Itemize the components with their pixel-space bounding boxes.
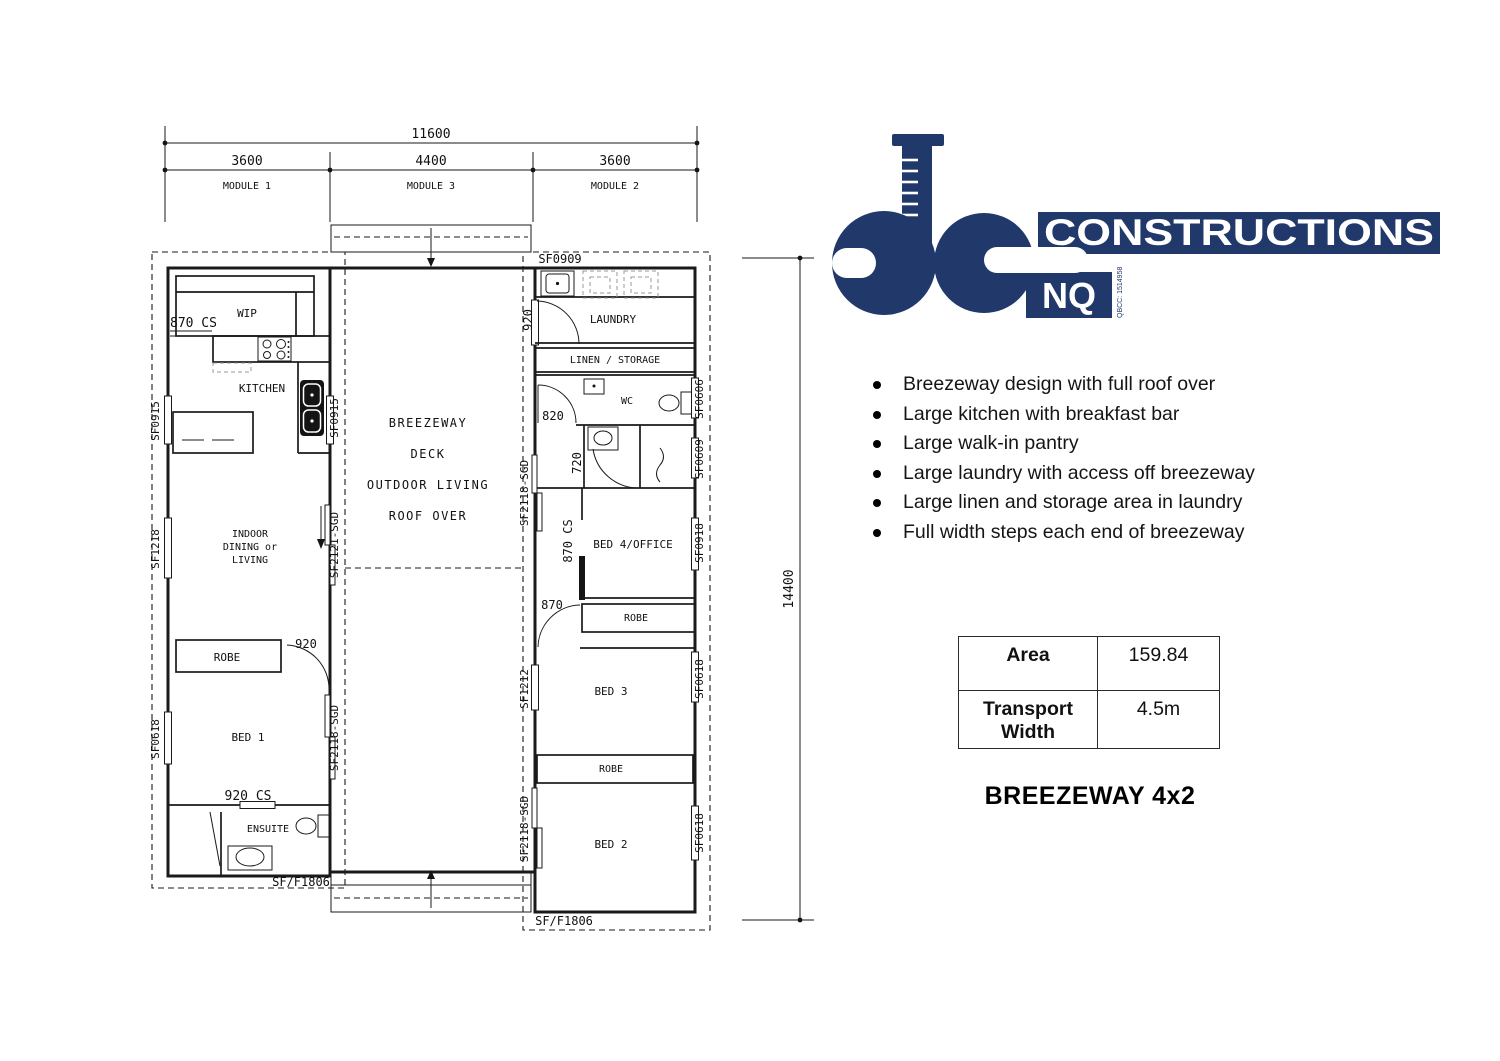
module1-label: MODULE 1 [223,181,271,192]
label-sf0909: SF0909 [538,252,581,266]
table-row: Transport Width 4.5m [959,691,1220,749]
area-value: 159.84 [1098,637,1220,691]
table-row: Area 159.84 [959,637,1220,691]
label-870cs: 870 CS [170,316,217,331]
label-870cs-right: 870 CS [561,519,575,562]
feature-list: Breezeway design with full roof over Lar… [866,370,1306,547]
label-sf0915-right: SF0915 [328,398,341,438]
label-sff1806-right: SF/F1806 [535,914,593,928]
floor-plan: 11600 3600 4400 3600 MODULE 1 MODULE 3 M… [0,0,830,1000]
feature-item: Large walk-in pantry [866,429,1306,459]
feature-item: Breezeway design with full roof over [866,370,1306,400]
feature-item: Large kitchen with breakfast bar [866,400,1306,430]
right-dimension: 14400 [742,256,814,923]
room-label-bed2: BED 2 [594,838,627,851]
spec-table: Area 159.84 Transport Width 4.5m [958,636,1220,749]
plan-title: BREEZEWAY 4x2 [950,782,1230,811]
label-door-920: 920 [295,637,317,651]
label-sf0618-r2: SF0618 [693,813,706,853]
logo-constructions-text: CONSTRUCTIONS [1044,212,1434,253]
room-label-robe1: ROBE [214,651,241,664]
label-sf0609: SF0609 [693,439,706,479]
area-label: Area [959,637,1098,691]
dim-total-length: 14400 [782,569,797,608]
label-sf2118-sgd-r1: SF2118-SGD [518,460,531,526]
room-label-indoor-3: LIVING [232,555,268,566]
feature-item: Full width steps each end of breezeway [866,518,1306,548]
room-label-robe2: ROBE [624,613,648,624]
room-label-deck: DECK [411,447,446,461]
module-2: LAUNDRY LINEN / STORAGE WC BED 4/OFFICE … [518,252,706,928]
feature-item: Large laundry with access off breezeway [866,459,1306,489]
company-logo: CONSTRUCTIONS NQ QBCC: 1514958 [826,126,1450,332]
label-door-920-laundry: 920 [521,309,535,331]
dim-total-width: 11600 [411,127,450,142]
label-door-820: 820 [542,409,564,423]
label-sf0606: SF0606 [693,379,706,419]
room-label-laundry: LAUNDRY [590,313,637,326]
label-door-870: 870 [541,598,563,612]
room-label-bed1: BED 1 [231,731,264,744]
feature-item: Large linen and storage area in laundry [866,488,1306,518]
room-label-outdoor-living: OUTDOOR LIVING [367,478,489,492]
transport-width-value: 4.5m [1098,691,1220,749]
top-dimensions: 11600 3600 4400 3600 MODULE 1 MODULE 3 M… [163,126,700,222]
module3-label: MODULE 3 [407,181,455,192]
room-label-indoor-2: DINING or [223,542,277,553]
module2-label: MODULE 2 [591,181,639,192]
module-1: WIP KITCHEN INDOOR DINING or LIVING ROBE… [149,268,341,889]
label-sf2118-sgd-m1: SF2118-SGD [328,705,341,771]
label-sf1218: SF1218 [149,529,162,569]
logo-nq-text: NQ [1042,275,1096,316]
room-label-indoor-1: INDOOR [232,529,269,540]
dim-module2: 3600 [599,154,630,169]
label-sf0915-left: SF0915 [149,401,162,441]
room-label-bed3: BED 3 [594,685,627,698]
label-sf1212: SF1212 [518,669,531,709]
label-sf0618-r1: SF0618 [693,659,706,699]
label-sf0618-left: SF0618 [149,719,162,759]
room-label-robe3: ROBE [599,764,623,775]
room-label-kitchen: KITCHEN [239,382,285,395]
label-sff1806-left: SF/F1806 [272,875,330,889]
label-920cs: 920 CS [225,789,272,804]
dim-module1: 3600 [231,154,262,169]
room-label-linen: LINEN / STORAGE [570,355,660,366]
label-sf2121-sgd: SF2121-SGD [328,512,341,578]
room-label-breezeway: BREEZEWAY [389,416,468,430]
dim-module3: 4400 [415,154,446,169]
logo-qbcc-text: QBCC: 1514958 [1117,267,1124,318]
label-sf0918: SF0918 [693,523,706,563]
label-door-720: 720 [570,452,584,474]
label-sf2118-sgd-r2: SF2118-SGD [518,796,531,862]
room-label-bed4: BED 4/OFFICE [593,538,672,551]
transport-boundaries [152,252,710,930]
room-label-wc: WC [621,396,633,407]
room-label-roof-over: ROOF OVER [389,509,468,523]
room-label-ensuite: ENSUITE [247,824,289,835]
transport-width-label: Transport Width [959,691,1098,749]
room-label-wip: WIP [237,307,257,320]
